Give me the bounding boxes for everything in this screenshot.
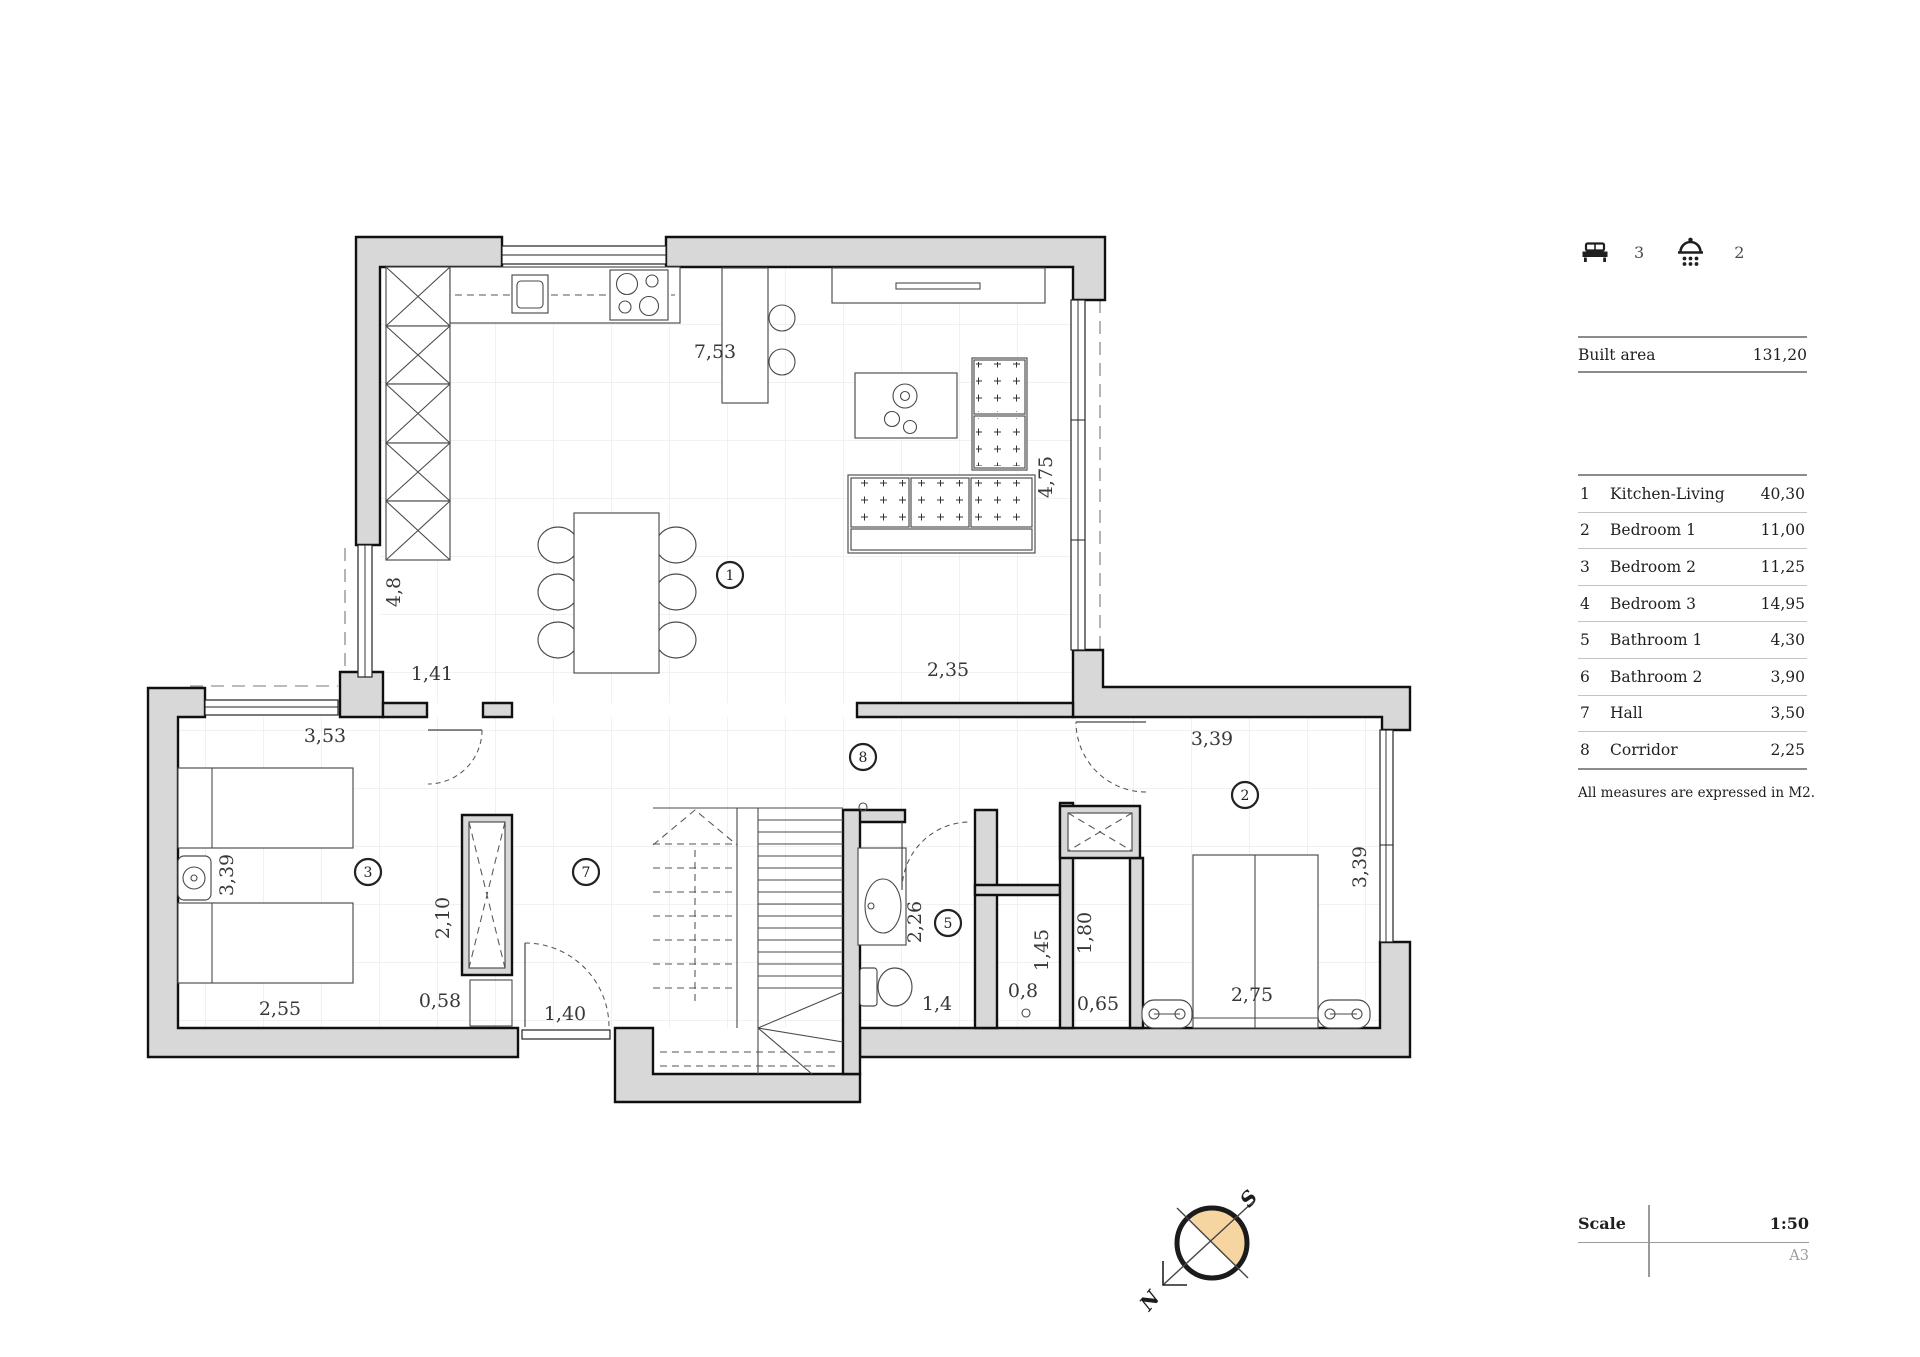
- room-row: 5Bathroom 14,30: [1578, 622, 1807, 659]
- rooms-table: 1Kitchen-Living40,302Bedroom 111,003Bedr…: [1578, 474, 1807, 770]
- room-area: 3,90: [1770, 668, 1807, 686]
- nightstand: [1318, 1000, 1370, 1028]
- room-marker: 1: [717, 562, 743, 588]
- dimension-label: 2,35: [927, 659, 969, 681]
- room-row: 3Bedroom 211,25: [1578, 549, 1807, 586]
- room-name: Bedroom 2: [1610, 558, 1761, 576]
- dimension-label: 4,75: [1035, 456, 1057, 498]
- built-area-row: Built area 131,20: [1578, 336, 1807, 373]
- dimension-label: 1,80: [1074, 912, 1096, 954]
- dining-table: [574, 513, 659, 673]
- room-area: 14,95: [1761, 595, 1807, 613]
- dimension-label: 3,39: [1191, 728, 1233, 750]
- kitchen-counter: [450, 267, 680, 323]
- room-area: 11,25: [1761, 558, 1807, 576]
- dimension-label: 1,4: [922, 993, 952, 1015]
- room-number: 5: [1578, 631, 1610, 649]
- room-number: 4: [1578, 595, 1610, 613]
- single-bed: [178, 903, 353, 983]
- dimension-label: 2,75: [1231, 984, 1273, 1006]
- compass-north-label: N: [1134, 1285, 1165, 1316]
- room-marker: 7: [573, 859, 599, 885]
- room-area: 11,00: [1761, 521, 1807, 539]
- room-area: 40,30: [1761, 485, 1807, 503]
- room-area: 2,25: [1770, 741, 1807, 759]
- measures-footnote: All measures are expressed in M2.: [1578, 785, 1823, 801]
- feature-icons-row: 3 2: [1578, 234, 1807, 270]
- room-number: 1: [1578, 485, 1610, 503]
- room-marker: 5: [935, 910, 961, 936]
- room-area: 3,50: [1770, 704, 1807, 722]
- room-name: Bathroom 1: [1610, 631, 1770, 649]
- built-area-label: Built area: [1578, 346, 1656, 364]
- room-name: Bathroom 2: [1610, 668, 1770, 686]
- bedroom1-wardrobe: [1068, 813, 1132, 851]
- bedroom2-window: [205, 700, 338, 715]
- room-row: 7Hall3,50: [1578, 696, 1807, 733]
- sink: [858, 848, 906, 945]
- dimension-label: 2,26: [904, 901, 926, 943]
- room-row: 6Bathroom 23,90: [1578, 659, 1807, 696]
- compass-south-label: S: [1235, 1185, 1263, 1211]
- floor-plan-sheet: 7,534,754,81,412,353,533,393,393,392,102…: [0, 0, 1920, 1357]
- paper-size: A3: [1578, 1248, 1809, 1264]
- dimension-label: 3,39: [216, 854, 238, 896]
- toilet: [860, 968, 912, 1006]
- svg-text:1: 1: [726, 568, 735, 584]
- cooktop: [610, 270, 668, 320]
- built-area-value: 131,20: [1753, 346, 1807, 364]
- dimension-label: 4,8: [383, 577, 405, 607]
- scale-divider: [1648, 1205, 1650, 1277]
- scale-block: Scale 1:50 A3: [1578, 1205, 1809, 1264]
- scale-value: 1:50: [1770, 1214, 1809, 1233]
- room-marker: 3: [355, 859, 381, 885]
- svg-text:7: 7: [582, 865, 591, 881]
- kitchen-window: [502, 246, 666, 264]
- room-area: 4,30: [1770, 631, 1807, 649]
- dimension-label: 0,8: [1008, 980, 1038, 1002]
- room-name: Bedroom 3: [1610, 595, 1761, 613]
- room-number: 7: [1578, 704, 1610, 722]
- room-number: 2: [1578, 521, 1610, 539]
- kitchen-tall-units: [386, 267, 450, 560]
- dimension-label: 0,58: [419, 990, 461, 1012]
- svg-text:3: 3: [364, 865, 373, 881]
- svg-text:8: 8: [859, 750, 868, 766]
- shower-icon: [1677, 237, 1704, 268]
- bed-count: 3: [1634, 243, 1644, 262]
- room-name: Bedroom 1: [1610, 521, 1761, 539]
- scale-label: Scale: [1578, 1214, 1626, 1233]
- room-number: 8: [1578, 741, 1610, 759]
- dimension-label: 2,10: [432, 897, 454, 939]
- coffee-table: [855, 373, 957, 438]
- room-row: 2Bedroom 111,00: [1578, 513, 1807, 550]
- nightstand: [178, 856, 211, 900]
- sofa: [848, 475, 1035, 553]
- bedroom1-window: [1380, 730, 1393, 942]
- entrance-threshold: [522, 1030, 610, 1039]
- dimension-label: 3,53: [304, 725, 346, 747]
- svg-text:2: 2: [1241, 788, 1250, 804]
- living-right-window: [1071, 300, 1085, 650]
- shower-count: 2: [1734, 243, 1744, 262]
- room-row: 1Kitchen-Living40,30: [1578, 476, 1807, 513]
- compass-rose: N S: [1134, 1185, 1263, 1316]
- room-name: Hall: [1610, 704, 1770, 722]
- room-row: 4Bedroom 314,95: [1578, 586, 1807, 623]
- dimension-label: 1,41: [411, 663, 453, 685]
- living-left-window: [358, 545, 372, 677]
- armchair: [972, 358, 1027, 470]
- dimension-label: 1,45: [1031, 929, 1053, 971]
- dimension-label: 3,39: [1349, 846, 1371, 888]
- room-row: 8Corridor2,25: [1578, 732, 1807, 770]
- bed-icon: [1582, 242, 1608, 263]
- svg-text:5: 5: [944, 916, 953, 932]
- room-number: 6: [1578, 668, 1610, 686]
- room-marker: 2: [1232, 782, 1258, 808]
- dimension-label: 1,40: [544, 1003, 586, 1025]
- room-number: 3: [1578, 558, 1610, 576]
- kitchen-sink: [512, 275, 548, 313]
- dimension-label: 7,53: [694, 341, 736, 363]
- room-name: Corridor: [1610, 741, 1770, 759]
- dimension-label: 2,55: [259, 998, 301, 1020]
- room-name: Kitchen-Living: [1610, 485, 1761, 503]
- dimension-label: 0,65: [1077, 993, 1119, 1015]
- room-marker: 8: [850, 744, 876, 770]
- nightstand: [1142, 1000, 1192, 1028]
- single-bed: [178, 768, 353, 848]
- tv-console: [832, 268, 1045, 303]
- dining-set: [538, 513, 696, 673]
